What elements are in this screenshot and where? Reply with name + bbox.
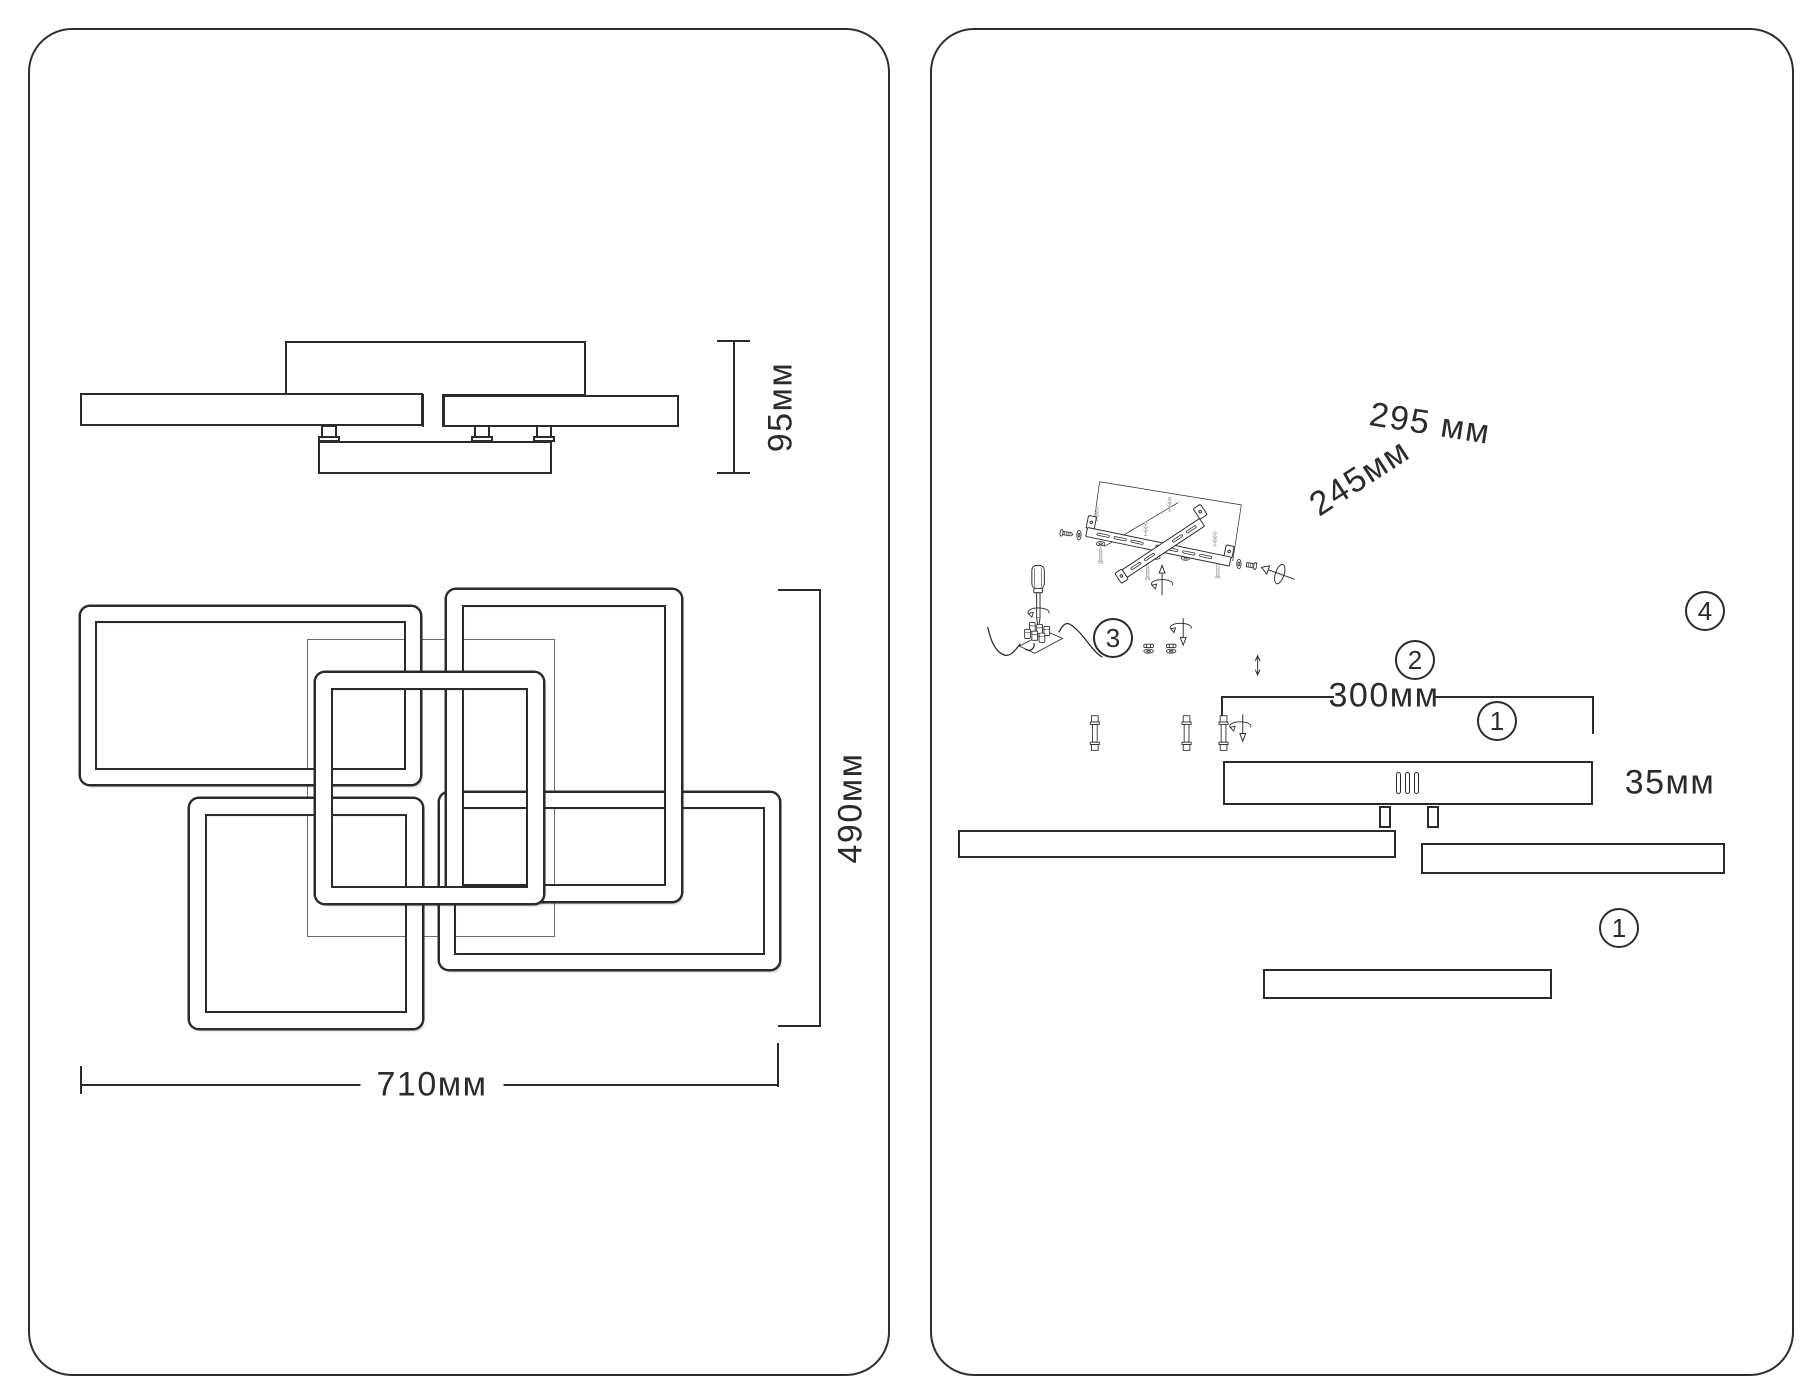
rotate-icon — [1230, 722, 1251, 731]
step-number: 2 — [1408, 645, 1422, 676]
step-badge-1b: 1 — [1599, 908, 1639, 948]
base-height-label: 35мм — [1625, 764, 1716, 803]
nut-washer-icon — [1166, 644, 1176, 653]
vent-slot-icon — [1414, 772, 1419, 794]
wall-anchor-icon — [1213, 532, 1218, 546]
side-view-driver-box — [285, 341, 586, 396]
plan-width-label: 710мм — [361, 1066, 504, 1105]
step-number: 4 — [1698, 596, 1712, 627]
dim-95-tick-bottom — [717, 472, 750, 474]
dim-95-tick-top — [717, 340, 750, 342]
dim-710-tick-left — [80, 1066, 82, 1094]
step-badge-1: 1 — [1477, 701, 1517, 741]
base-width-label: 300мм — [1329, 677, 1440, 716]
installation-diagram: 95мм 490мм 710мм — [0, 0, 1800, 1400]
side-view-canopy-box — [318, 441, 552, 474]
vent-slot-icon — [1396, 772, 1401, 794]
side-view-right-arm — [443, 395, 679, 427]
dim-35-arrow — [1255, 656, 1260, 675]
wall-anchor-icon — [1167, 497, 1172, 511]
mounting-screw-icon — [1146, 564, 1150, 580]
step-number: 1 — [1612, 913, 1626, 944]
lower-arrow-step1-icon — [1180, 618, 1186, 645]
dim-490-tick-top — [778, 589, 821, 591]
dim-710-tick-right — [777, 1043, 779, 1087]
dim-95-line — [733, 341, 735, 474]
fixing-screw-right-icon — [1237, 559, 1257, 570]
vent-slot-icon — [1405, 772, 1410, 794]
plan-height-label: 490мм — [832, 753, 871, 864]
dim-490-line — [819, 590, 821, 1027]
side-view-center-joint — [422, 394, 444, 427]
lift-arrow-step2-icon — [1159, 565, 1165, 595]
washer-icon — [1096, 542, 1105, 546]
step-badge-3: 3 — [1093, 618, 1133, 658]
step-badge-4: 4 — [1685, 591, 1725, 631]
lower-arrow-step1-icon — [1240, 714, 1246, 741]
side-height-label: 95мм — [762, 362, 801, 453]
side-view-left-arm — [80, 393, 423, 426]
terminal-block-icon — [1019, 623, 1062, 654]
fixing-screw-left-icon — [1060, 529, 1082, 540]
mounting-screw-icon — [1099, 548, 1103, 564]
screwdriver-icon — [1032, 565, 1044, 624]
nut-washer-icon — [1144, 644, 1154, 653]
standoff-post-icon — [1182, 716, 1191, 751]
step-number: 1 — [1490, 706, 1504, 737]
mounting-screw-icon — [1216, 563, 1220, 579]
standoff-post-icon — [1219, 716, 1228, 751]
plan-frame-center — [316, 673, 543, 903]
step-number: 3 — [1106, 623, 1120, 654]
wall-anchor-icon — [1143, 522, 1148, 536]
standoff-post-icon — [1090, 716, 1099, 751]
push-arrow-step4-icon — [1262, 563, 1295, 585]
step-badge-2: 2 — [1395, 640, 1435, 680]
dim-490-tick-bottom — [778, 1025, 821, 1027]
rotate-icon — [1170, 623, 1191, 632]
